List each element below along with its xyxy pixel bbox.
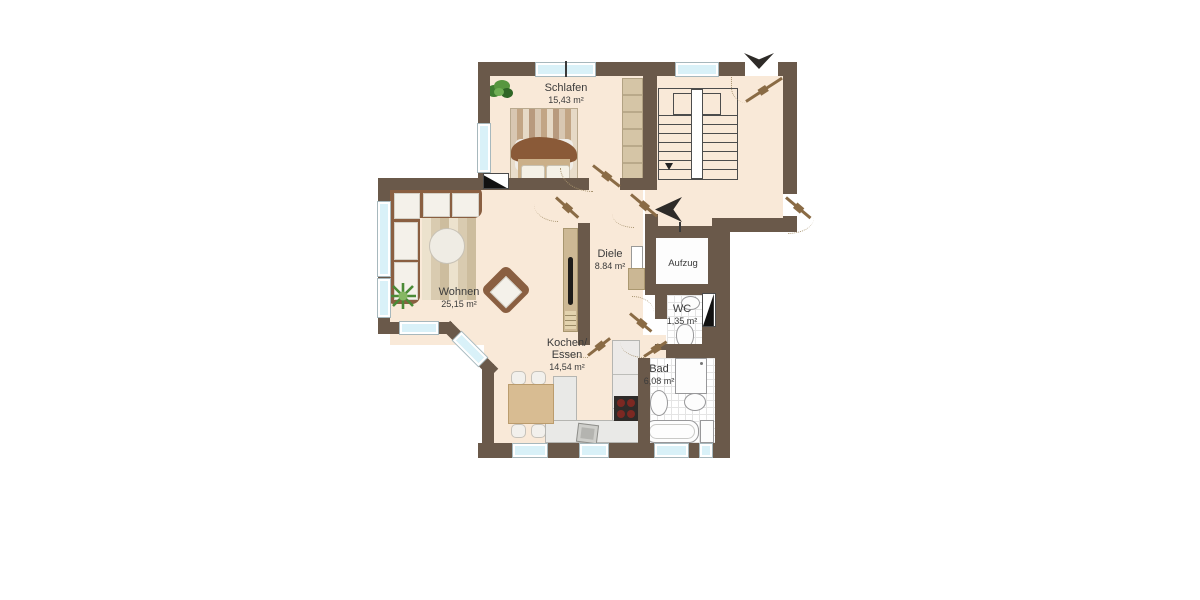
room-name: Bad [649, 363, 669, 375]
bad-washbasin [650, 390, 668, 416]
washing-machine [700, 420, 714, 443]
room-name: Wohnen [439, 286, 480, 298]
wall-right-lower [715, 232, 730, 458]
wall-under-chimney [702, 327, 715, 350]
plant-icon [388, 281, 418, 311]
room-label-bad: Bad 6,08 m² [644, 363, 675, 387]
kitchen-sink [576, 423, 599, 444]
room-label-wohnen: Wohnen 25,15 m² [439, 286, 480, 310]
sofa-cushion [394, 222, 418, 260]
shower-head [700, 362, 703, 365]
window-kochen-bottom [580, 444, 608, 457]
staircase [658, 88, 738, 180]
plant-icon [486, 78, 514, 100]
window-mullion [565, 61, 567, 77]
floorplan-canvas: Schlafen 15,43 m² Wohnen 25,15 m² Diele … [0, 0, 1200, 600]
hall-chest [628, 268, 645, 290]
bathtub-inner [649, 424, 695, 439]
wall-wc-left [655, 293, 667, 319]
window-bad-bottom-small [700, 444, 712, 457]
entrance-arrow-icon [744, 53, 774, 69]
window-stairwell-top [676, 63, 718, 76]
room-name: Kochen/ [547, 337, 587, 349]
sofa-cushion [423, 193, 450, 217]
elevator-door-mark [679, 222, 681, 232]
dining-chair [511, 371, 526, 385]
bad-toilet [684, 393, 706, 411]
sideboard-drawers [565, 311, 576, 329]
coffee-table [429, 228, 465, 264]
burner [617, 399, 625, 407]
room-area: 14,54 m² [549, 362, 585, 372]
burner [627, 399, 635, 407]
sofa-cushion [394, 193, 420, 219]
room-label-wc: WC 1,35 m² [667, 303, 698, 327]
dining-table [508, 384, 554, 424]
tv-sideboard [563, 228, 578, 332]
room-label-schlafen: Schlafen 15,43 m² [545, 82, 588, 106]
wall-aufzug-left [645, 226, 656, 293]
burner [617, 410, 625, 418]
wall-kochen-left [482, 364, 494, 452]
chimney-fill [703, 294, 715, 326]
sofa-cushion [452, 193, 479, 217]
wardrobe [622, 78, 643, 180]
wall-bad-top [666, 350, 715, 358]
wall-stair-divider [643, 62, 657, 190]
tv-icon [568, 257, 573, 305]
chimney-icon [483, 173, 509, 189]
stair-handrail [691, 89, 703, 179]
burner [627, 410, 635, 418]
shower [675, 358, 707, 394]
wall-diele-divider [578, 223, 590, 345]
room-name-2: Essen [552, 349, 583, 361]
room-area: 15,43 m² [548, 95, 584, 105]
window-schlafen-left [478, 124, 490, 172]
chimney-icon [702, 293, 716, 327]
room-name: Aufzug [668, 258, 698, 269]
armchair-cushion [490, 276, 523, 309]
wall-aufzug-right [708, 238, 715, 286]
room-area: 6,08 m² [644, 376, 675, 386]
window-wohnen-bottom [400, 322, 438, 334]
wall-right-upper [783, 62, 797, 194]
window-wohnen-left-2 [378, 279, 390, 317]
stair-direction-arrow [665, 163, 673, 170]
sink-basin [580, 427, 594, 440]
stove [614, 396, 638, 421]
side-door-swing [788, 218, 814, 234]
room-name: Schlafen [545, 82, 588, 94]
wall-schlafen-bottom-b [620, 178, 643, 190]
room-label-diele: Diele 8.84 m² [595, 248, 626, 272]
room-area: 8.84 m² [595, 261, 626, 271]
wc-door-swing [632, 296, 654, 312]
room-area: 25,15 m² [441, 299, 477, 309]
room-label-aufzug: Aufzug [668, 258, 698, 270]
room-name: Diele [597, 248, 622, 260]
window-essen-bottom [513, 444, 547, 457]
chimney-fill [484, 174, 508, 188]
dining-chair [531, 424, 546, 438]
dining-chair [531, 371, 546, 385]
bathtub [645, 420, 699, 443]
dining-chair [511, 424, 526, 438]
room-label-kochen-essen: Kochen/ Essen 14,54 m² [547, 337, 587, 373]
window-bad-bottom [655, 444, 688, 457]
wall-stairwell-bottom [712, 218, 797, 232]
room-area: 1,35 m² [667, 316, 698, 326]
room-name: WC [673, 303, 691, 315]
window-wohnen-left-1 [378, 202, 390, 276]
